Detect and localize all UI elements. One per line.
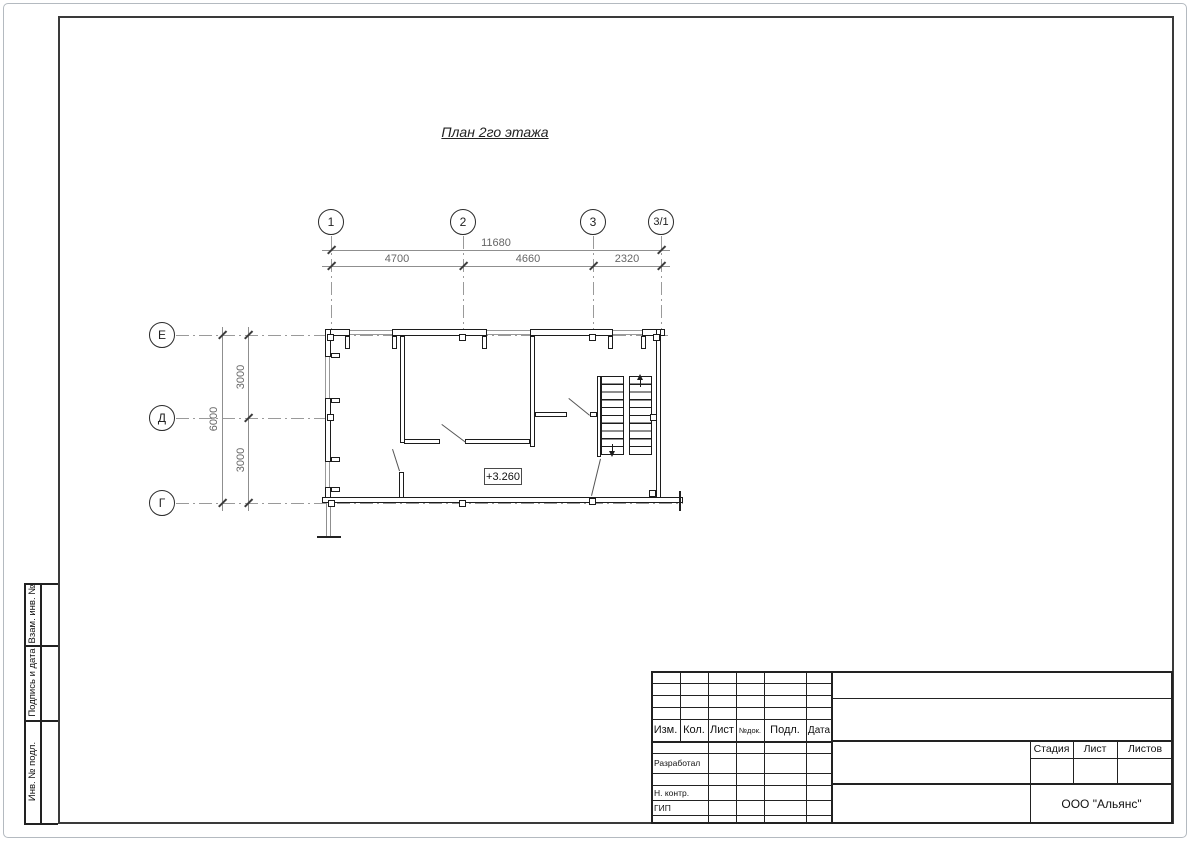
- dim-span-1-2: 4700: [367, 253, 427, 265]
- tb-line: [1030, 758, 1173, 759]
- column-marker: [327, 334, 334, 341]
- column-marker: [459, 334, 466, 341]
- column-marker: [327, 414, 334, 421]
- stair-arrow-down: [609, 451, 615, 457]
- lower-wall-trace: [330, 503, 331, 537]
- axis-label: 3/1: [653, 216, 668, 228]
- wall-jamb: [331, 487, 340, 492]
- window: [325, 357, 330, 398]
- wall-jamb: [345, 336, 350, 349]
- margin-label-podpis: Подпись и дата: [25, 645, 40, 720]
- tb-line: [651, 773, 832, 774]
- tb-row-nkontr: Н. контр.: [651, 785, 708, 800]
- drawing-sheet: План 2го этажа 11680 4700 4660 2320 6000…: [0, 0, 1191, 842]
- window: [325, 462, 330, 487]
- tb-stage-label: Стадия: [1034, 743, 1070, 755]
- stair-arrow-up: [637, 374, 643, 380]
- axis-bubble-E: Е: [149, 322, 175, 348]
- dim-span-3-31: 2320: [597, 253, 657, 265]
- window: [350, 330, 392, 335]
- column-marker: [649, 490, 656, 497]
- drawing-title: План 2го этажа: [385, 124, 605, 140]
- wall-jamb: [331, 457, 340, 462]
- axis-bubble-3: 3: [580, 209, 606, 235]
- elevation-value: +3.260: [486, 471, 520, 483]
- axis-label: 1: [328, 215, 335, 229]
- tb-line: [651, 683, 832, 684]
- column-marker: [328, 500, 335, 507]
- margin-strip-line: [40, 583, 42, 825]
- wall-landing: [535, 412, 567, 417]
- tb-col-label: Подл.: [770, 724, 800, 736]
- axis-line-D: [176, 418, 325, 419]
- tb-col-label: Дата: [808, 725, 830, 736]
- tb-col-podl: Подл.: [764, 719, 806, 741]
- window: [487, 330, 530, 335]
- column-marker: [589, 498, 596, 505]
- tb-col-label: Лист: [710, 724, 734, 736]
- tb-row-label: Н. контр.: [654, 788, 689, 798]
- tb-stage: Стадия: [1030, 740, 1073, 758]
- tb-line: [651, 707, 832, 708]
- wall-jamb: [482, 336, 487, 349]
- tb-company-name: ООО "Альянс": [1061, 797, 1141, 811]
- dim-line-left-total: [222, 327, 223, 511]
- dim-total-left: 6000: [208, 407, 220, 431]
- window: [613, 330, 642, 335]
- wall-stub: [399, 472, 404, 498]
- wall-left: [325, 398, 331, 462]
- axis-bubble-3-1: 3/1: [648, 209, 674, 235]
- column-marker: [589, 334, 596, 341]
- axis-label: Д: [158, 411, 166, 425]
- wall-end-mark: [679, 491, 681, 511]
- tb-line: [651, 741, 832, 743]
- elevation-mark: +3.260: [484, 468, 522, 485]
- tb-col-kol: Кол.: [680, 719, 708, 741]
- tb-sheet-label: Лист: [1084, 743, 1107, 755]
- wall-top: [530, 329, 613, 336]
- dim-span-E-D: 3000: [235, 365, 247, 389]
- margin-label-text: Взам. инв. №: [27, 585, 38, 644]
- axis-line-G: [176, 503, 683, 504]
- margin-label-text: Подпись и дата: [27, 648, 38, 716]
- tb-company: ООО "Альянс": [1030, 783, 1173, 824]
- tb-sheets: Листов: [1117, 740, 1173, 758]
- column-marker: [459, 500, 466, 507]
- tb-col-izm: Изм.: [651, 719, 680, 741]
- stair-flight-right: [629, 376, 652, 455]
- tb-row-label: ГИП: [654, 803, 671, 813]
- margin-strip-line: [24, 823, 58, 825]
- dim-span-2-3: 4660: [498, 253, 558, 265]
- dim-line-top-total: [322, 250, 670, 251]
- tb-sheet: Лист: [1073, 740, 1117, 758]
- wall-jamb: [392, 336, 397, 349]
- tb-sheets-label: Листов: [1128, 743, 1162, 755]
- wall-room-left: [400, 336, 405, 443]
- axis-bubble-D: Д: [149, 405, 175, 431]
- wall-stub: [590, 412, 597, 417]
- stair-arrow-stem: [640, 379, 641, 387]
- axis-label: 2: [460, 215, 467, 229]
- axis-label: Е: [158, 328, 166, 342]
- wall-bottom: [322, 497, 683, 503]
- axis-bubble-1: 1: [318, 209, 344, 235]
- column-marker: [650, 414, 657, 421]
- axis-label: Г: [159, 496, 166, 510]
- wall-jamb: [641, 336, 646, 349]
- wall-jamb: [331, 398, 340, 403]
- tb-line: [832, 698, 1173, 699]
- lower-wall-trace: [326, 503, 327, 537]
- axis-bubble-2: 2: [450, 209, 476, 235]
- dim-line-top-spans: [322, 266, 670, 267]
- lower-wall-end: [317, 536, 341, 538]
- tb-col-label: №док.: [739, 726, 761, 735]
- margin-label-vzam: Взам. инв. №: [25, 583, 40, 645]
- wall-top: [392, 329, 487, 336]
- wall-room-bottom: [404, 439, 440, 444]
- margin-label-inv: Инв. № подл.: [25, 720, 40, 823]
- wall-jamb: [608, 336, 613, 349]
- tb-row-gip: ГИП: [651, 800, 708, 815]
- tb-col-label: Кол.: [683, 724, 705, 736]
- tb-row-razrabotal: Разработал: [651, 753, 708, 773]
- wall-jamb: [331, 353, 340, 358]
- tb-col-label: Изм.: [654, 724, 678, 736]
- tb-line: [651, 815, 832, 816]
- margin-label-text: Инв. № подл.: [27, 742, 38, 801]
- tb-col-data: Дата: [806, 719, 832, 741]
- dim-span-D-G: 3000: [235, 448, 247, 472]
- axis-label: 3: [590, 215, 597, 229]
- tb-col-dok: №док.: [736, 719, 764, 741]
- tb-row-label: Разработал: [654, 758, 700, 768]
- wall-room-right: [530, 336, 535, 447]
- column-marker: [653, 334, 660, 341]
- tb-line: [651, 695, 832, 696]
- dim-total-top: 11680: [466, 237, 526, 249]
- axis-bubble-G: Г: [149, 490, 175, 516]
- tb-col-list: Лист: [708, 719, 736, 741]
- wall-room-bottom: [465, 439, 530, 444]
